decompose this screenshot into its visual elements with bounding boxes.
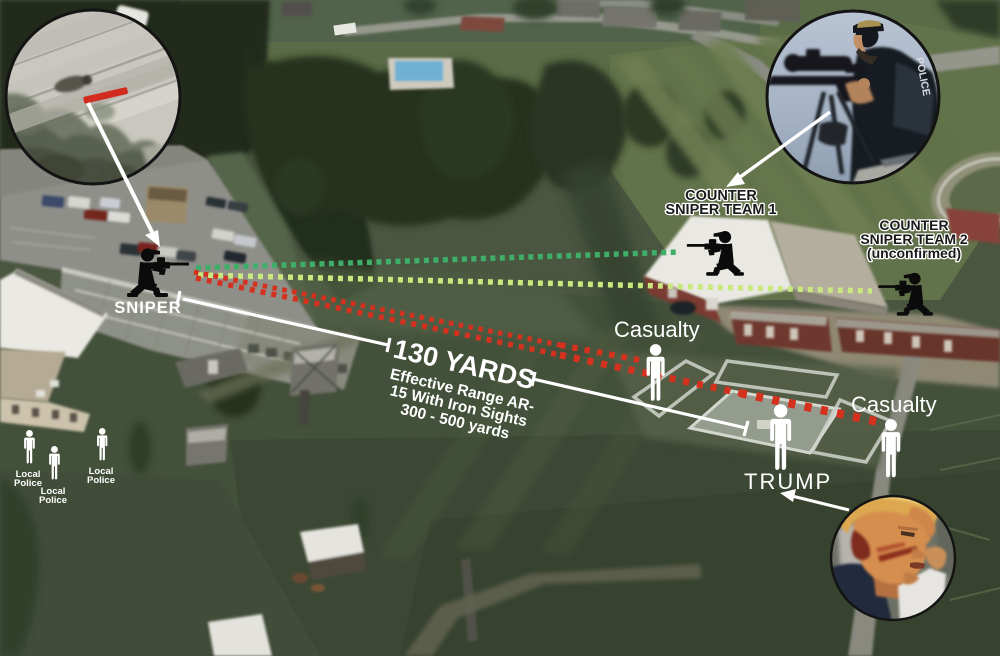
svg-text:Police: Police — [87, 475, 115, 486]
svg-text:(unconfirmed): (unconfirmed) — [867, 245, 961, 261]
svg-text:Casualty: Casualty — [614, 317, 700, 342]
svg-text:Casualty: Casualty — [851, 392, 937, 417]
svg-text:SNIPER: SNIPER — [114, 299, 181, 317]
svg-text:SNIPER TEAM 1: SNIPER TEAM 1 — [665, 202, 776, 218]
svg-text:TRUMP: TRUMP — [744, 469, 832, 494]
svg-text:Police: Police — [39, 495, 67, 506]
svg-text:Police: Police — [14, 478, 42, 489]
